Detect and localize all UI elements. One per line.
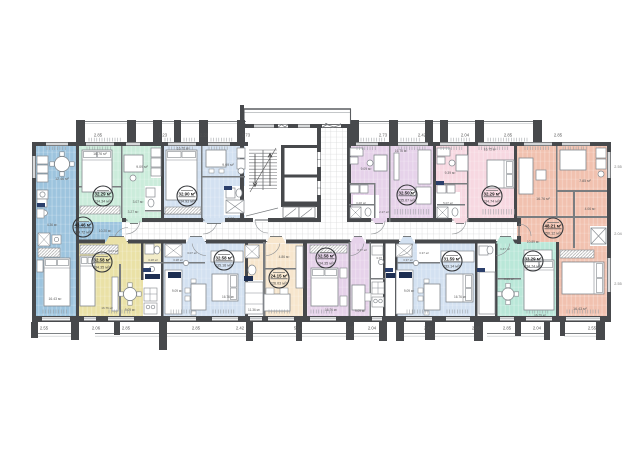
svg-text:4.86 м²: 4.86 м² [279,255,291,259]
svg-text:(35.07 м²): (35.07 м²) [399,198,415,202]
svg-text:3.07 м²: 3.07 м² [108,249,118,253]
svg-text:48.21 м²: 48.21 м² [545,223,562,228]
svg-text:2.85: 2.85 [503,326,512,331]
svg-text:43.46 м²: 43.46 м² [75,222,92,227]
svg-text:16.75 м²: 16.75 м² [484,148,497,152]
svg-text:16.76 м²: 16.76 м² [534,313,546,317]
svg-text:5.14: 5.14 [294,326,303,331]
svg-text:2.55: 2.55 [614,165,621,169]
svg-text:16.76 м²: 16.76 м² [101,306,112,310]
svg-text:2.85: 2.85 [472,326,481,331]
svg-text:32.50 м²: 32.50 м² [399,190,416,195]
svg-text:(34.34 м²): (34.34 м²) [95,199,111,203]
svg-text:3.07 м²: 3.07 м² [376,256,385,260]
svg-text:9.09 м²: 9.09 м² [355,309,365,313]
svg-text:(34.35 м²): (34.35 м²) [318,261,334,265]
svg-text:3.37 м²: 3.37 м² [419,251,429,255]
svg-text:(34.74 м²): (34.74 м²) [525,264,541,268]
svg-text:(50.12 м²): (50.12 м²) [545,231,561,235]
svg-text:2.55: 2.55 [614,282,621,286]
svg-text:2.85: 2.85 [504,133,513,138]
svg-text:2.85: 2.85 [554,133,563,138]
svg-text:4.06 м²: 4.06 м² [585,207,597,211]
svg-text:32.58 м²: 32.58 м² [216,255,233,260]
svg-text:2.85: 2.85 [346,326,355,331]
svg-text:2.04: 2.04 [368,326,377,331]
svg-text:(44.72 м²): (44.72 м²) [75,230,91,234]
svg-text:16.43 м²: 16.43 м² [49,297,63,301]
svg-text:3.28 м²: 3.28 м² [356,201,366,205]
svg-text:2.42: 2.42 [424,326,433,331]
svg-text:16.76 м²: 16.76 м² [177,147,190,151]
svg-text:(26.03 м²): (26.03 м²) [271,281,287,285]
svg-text:2.42: 2.42 [418,133,427,138]
svg-text:2.85: 2.85 [192,326,201,331]
svg-text:16.76 м²: 16.76 м² [93,152,107,156]
svg-text:2.73: 2.73 [379,133,388,138]
svg-text:4.36 м²: 4.36 м² [47,223,57,227]
svg-text:2.55: 2.55 [40,326,49,331]
svg-text:32.58 м²: 32.58 м² [94,257,111,262]
svg-text:2.06: 2.06 [92,326,101,331]
svg-text:(34.93 м²): (34.93 м²) [179,199,195,203]
svg-text:31.59 м²: 31.59 м² [444,256,461,261]
svg-text:2.42: 2.42 [236,326,245,331]
svg-text:7.85 м²: 7.85 м² [579,179,591,183]
svg-text:9.09 м²: 9.09 м² [504,277,514,281]
svg-text:9.39 м²: 9.39 м² [445,171,457,175]
svg-text:9.09 м²: 9.09 м² [172,289,182,293]
svg-text:2.04: 2.04 [614,232,621,236]
svg-text:3.07 м²: 3.07 м² [133,200,145,204]
svg-text:3.28 м²: 3.28 м² [173,258,183,262]
svg-text:2.04: 2.04 [461,133,470,138]
svg-text:32.29 м²: 32.29 м² [484,191,501,196]
svg-text:3.28 м²: 3.28 м² [148,258,158,262]
svg-text:(33.14 м²): (33.14 м²) [444,264,460,268]
svg-text:2.27 м²: 2.27 м² [379,210,389,214]
svg-text:2.04: 2.04 [533,326,542,331]
svg-text:11.36 м²: 11.36 м² [248,308,260,312]
svg-text:24.15 м²: 24.15 м² [271,273,288,278]
svg-text:33.29 м²: 33.29 м² [525,256,542,261]
svg-text:2.23: 2.23 [159,133,168,138]
svg-text:16.76 м²: 16.76 м² [454,295,466,299]
svg-text:2.85: 2.85 [122,326,131,331]
svg-text:3.27 м²: 3.27 м² [128,210,140,214]
svg-text:2.73: 2.73 [242,133,251,138]
svg-text:(35.16 м²): (35.16 м²) [216,263,232,267]
svg-text:5.07 м²: 5.07 м² [443,201,453,205]
svg-text:(34.74 м²): (34.74 м²) [484,199,500,203]
svg-text:10.89 м²: 10.89 м² [527,240,540,244]
svg-text:16.76 м²: 16.76 м² [536,197,550,201]
svg-text:3.37 м²: 3.37 м² [403,258,413,262]
svg-text:10.20 м²: 10.20 м² [99,229,112,233]
svg-text:9.09 м²: 9.09 м² [404,289,414,293]
svg-text:2.23: 2.23 [200,133,209,138]
svg-text:32.58 м²: 32.58 м² [318,253,335,258]
svg-text:2.85: 2.85 [94,133,103,138]
svg-text:16.76 м²: 16.76 м² [222,295,234,299]
svg-text:3.07 м²: 3.07 м² [187,251,197,255]
svg-text:9.09 м²: 9.09 м² [136,165,148,169]
svg-text:3.27 м²: 3.27 м² [228,217,240,221]
svg-text:9.09 м²: 9.09 м² [361,167,373,171]
svg-text:(34.35 м²): (34.35 м²) [94,265,110,269]
svg-text:12.46 м²: 12.46 м² [55,177,69,181]
svg-text:32.29 м²: 32.29 м² [95,191,112,196]
svg-text:9.09 м²: 9.09 м² [222,163,234,167]
svg-text:2.55: 2.55 [588,326,597,331]
svg-text:32.90 м²: 32.90 м² [179,191,196,196]
